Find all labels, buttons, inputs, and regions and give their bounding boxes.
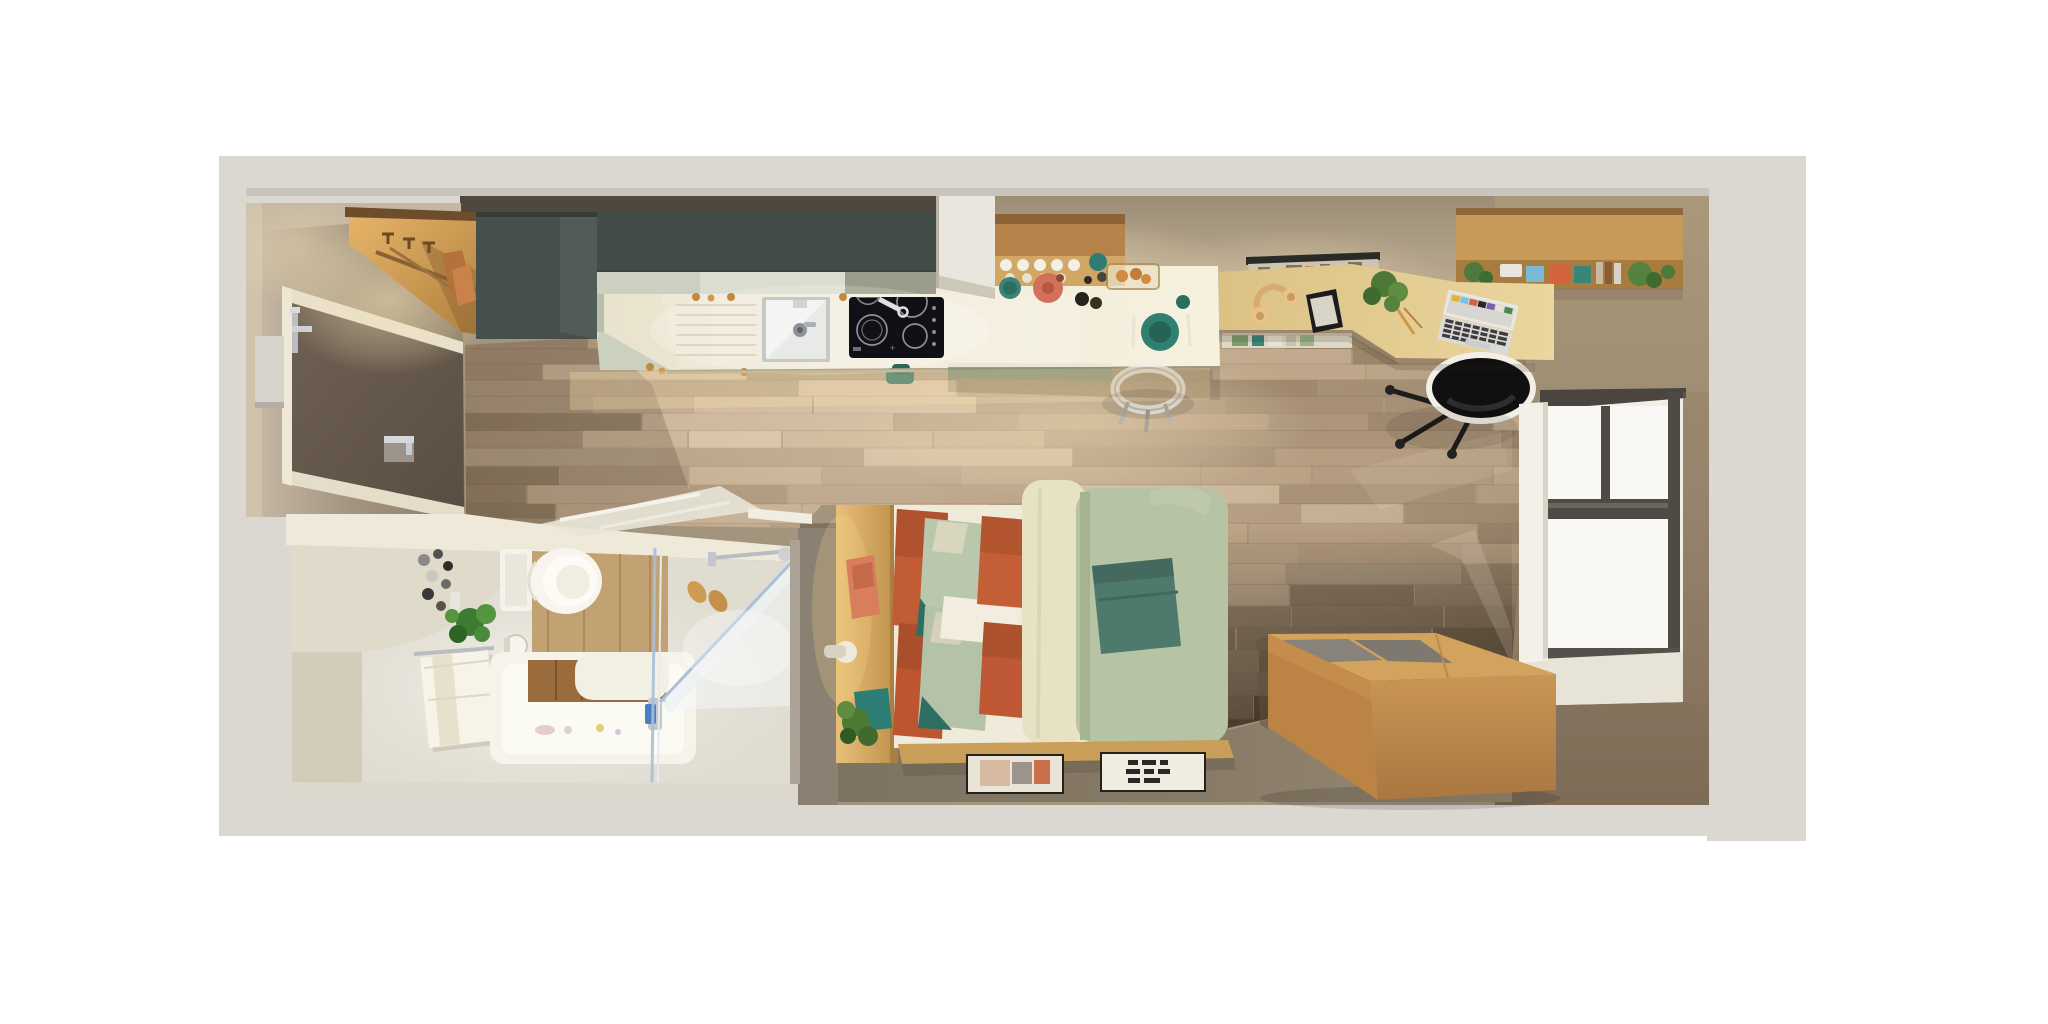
svg-text:+: + [890,343,895,353]
